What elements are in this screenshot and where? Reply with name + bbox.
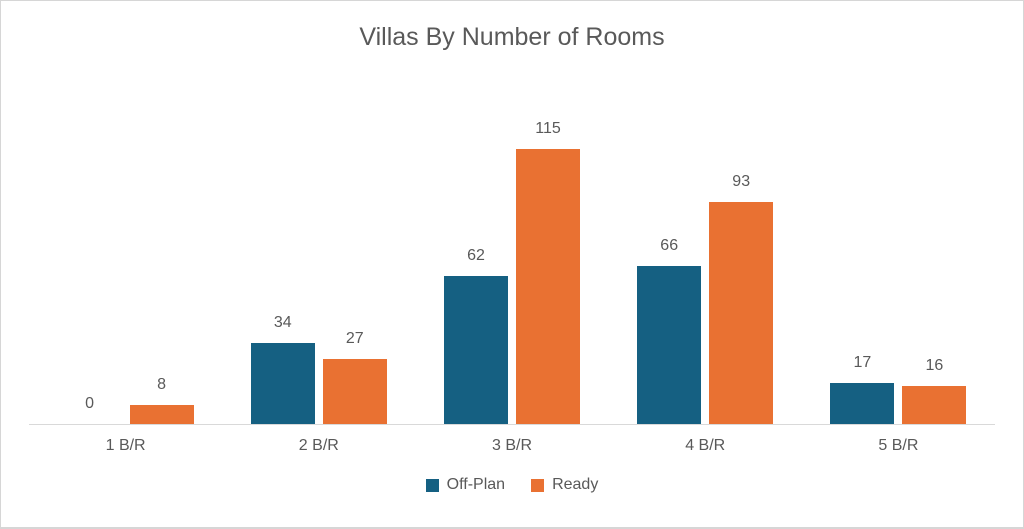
legend-swatch-icon — [426, 479, 439, 492]
bar-group: 08 — [29, 86, 222, 424]
data-label: 27 — [346, 329, 364, 349]
data-label: 93 — [732, 172, 750, 192]
x-axis-label: 2 B/R — [222, 425, 415, 455]
x-axis-label: 1 B/R — [29, 425, 222, 455]
villas-rooms-chart: Villas By Number of Rooms 08342762115669… — [0, 0, 1024, 529]
data-label: 66 — [660, 236, 678, 256]
chart-title: Villas By Number of Rooms — [1, 23, 1023, 52]
data-label: 62 — [467, 246, 485, 266]
x-axis-label: 3 B/R — [415, 425, 608, 455]
bar-with-label: 93 — [709, 172, 773, 424]
bar-off-plan — [830, 383, 894, 424]
bar-with-label: 66 — [637, 236, 701, 424]
data-label: 34 — [274, 313, 292, 333]
legend-item-off-plan: Off-Plan — [426, 476, 505, 494]
bar-ready — [709, 202, 773, 424]
bar-with-label: 16 — [902, 356, 966, 424]
bar-ready — [130, 405, 194, 424]
bar-off-plan — [444, 276, 508, 424]
bar-with-label: 62 — [444, 246, 508, 424]
bar-group: 1716 — [802, 86, 995, 424]
x-axis: 1 B/R2 B/R3 B/R4 B/R5 B/R — [29, 425, 995, 455]
legend-label: Off-Plan — [447, 476, 505, 494]
data-label: 0 — [85, 394, 94, 414]
data-label: 17 — [854, 353, 872, 373]
legend-swatch-icon — [531, 479, 544, 492]
data-label: 8 — [157, 375, 166, 395]
bar-with-label: 27 — [323, 329, 387, 424]
bar-with-label: 17 — [830, 353, 894, 424]
data-label: 115 — [535, 119, 561, 139]
x-axis-label: 5 B/R — [802, 425, 995, 455]
bar-ready — [323, 359, 387, 424]
bar-with-label: 0 — [58, 394, 122, 424]
plot-area: 0834276211566931716 — [29, 86, 995, 425]
bar-group: 3427 — [222, 86, 415, 424]
bar-ready — [516, 149, 580, 424]
bar-ready — [902, 386, 966, 424]
bar-off-plan — [251, 343, 315, 424]
x-axis-label: 4 B/R — [609, 425, 802, 455]
bar-group: 62115 — [415, 86, 608, 424]
bar-with-label: 34 — [251, 313, 315, 424]
bar-with-label: 115 — [516, 119, 580, 424]
data-label: 16 — [926, 356, 944, 376]
legend-item-ready: Ready — [531, 476, 598, 494]
bar-with-label: 8 — [130, 375, 194, 424]
bar-group: 6693 — [609, 86, 802, 424]
legend: Off-PlanReady — [1, 476, 1023, 494]
bar-off-plan — [637, 266, 701, 424]
legend-label: Ready — [552, 476, 598, 494]
